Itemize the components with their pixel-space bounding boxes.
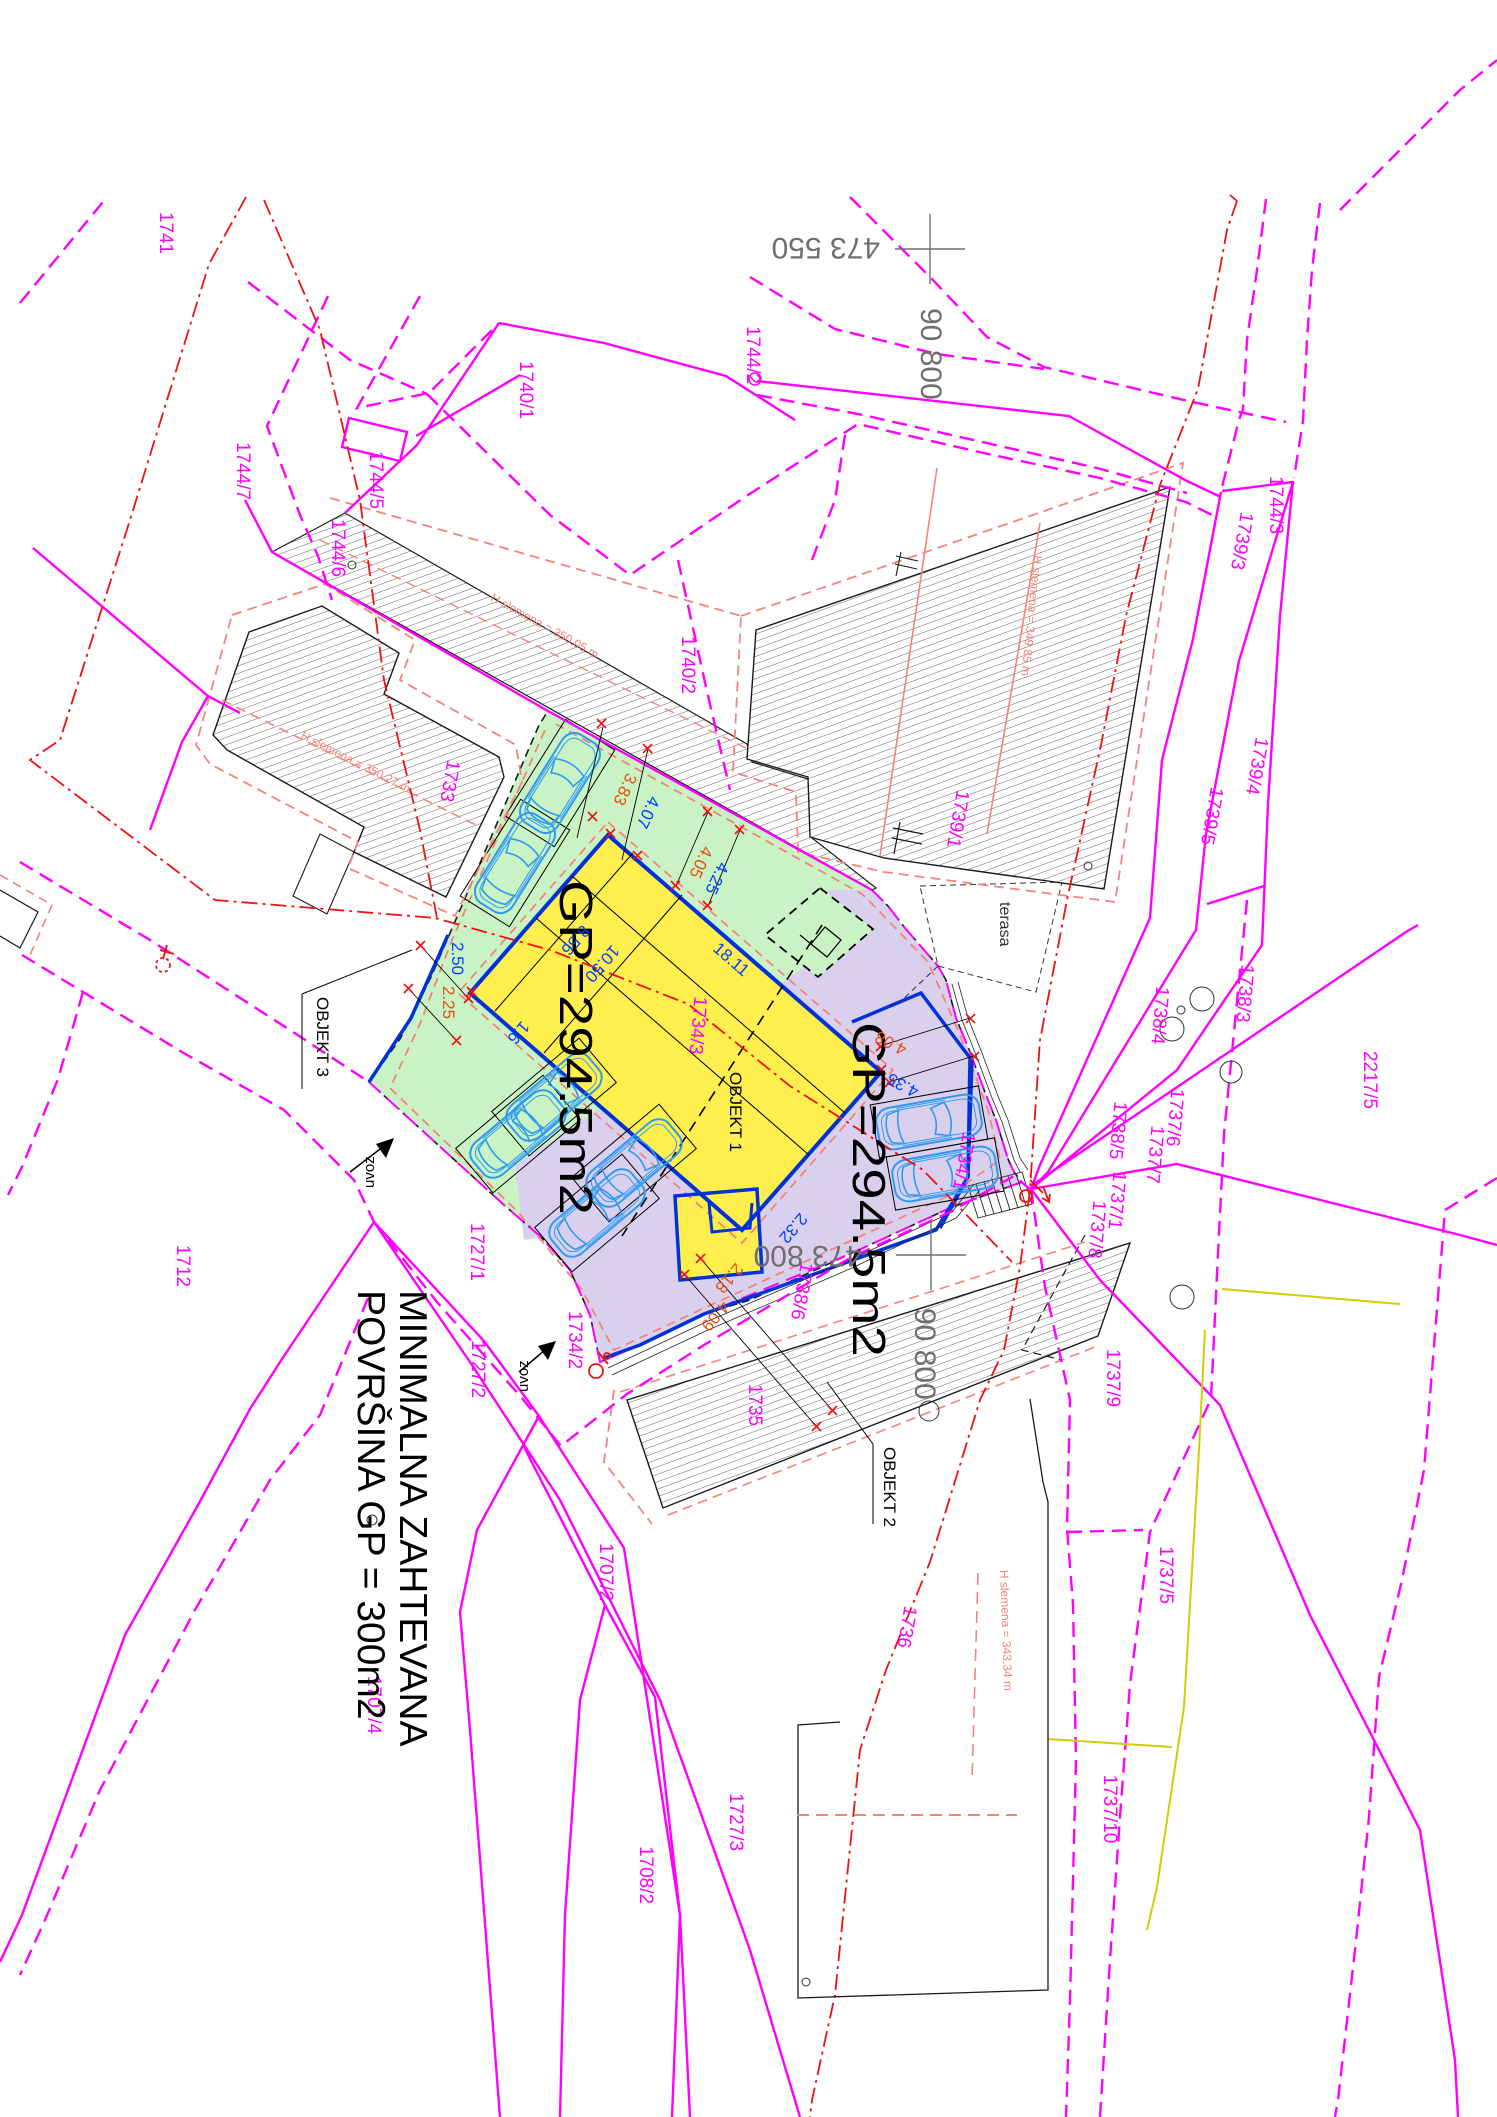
svg-text:1744/6: 1744/6 (327, 519, 348, 577)
svg-text:1737/10: 1737/10 (1099, 1775, 1120, 1844)
svg-text:GP=294.5m2: GP=294.5m2 (843, 1022, 895, 1357)
svg-text:OBJEKT 1: OBJEKT 1 (726, 1072, 745, 1152)
svg-text:OBJEKT 2: OBJEKT 2 (880, 1447, 899, 1527)
svg-text:473 550: 473 550 (772, 231, 880, 264)
svg-text:1707/2: 1707/2 (595, 1543, 616, 1601)
svg-text:90 800: 90 800 (914, 308, 947, 400)
svg-text:473 800: 473 800 (754, 1239, 862, 1272)
svg-text:2.25: 2.25 (439, 986, 458, 1019)
svg-text:1741: 1741 (155, 212, 176, 254)
svg-text:1712: 1712 (172, 1245, 193, 1287)
svg-text:uvoz: uvoz (361, 1156, 378, 1188)
svg-text:uvoz: uvoz (515, 1360, 532, 1392)
svg-text:POVRŠINA GP = 300m2: POVRŠINA GP = 300m2 (349, 1290, 393, 1720)
svg-text:1727/3: 1727/3 (725, 1793, 746, 1851)
svg-text:1744/3: 1744/3 (1265, 476, 1286, 534)
svg-text:MINIMALNA ZAHTEVANA: MINIMALNA ZAHTEVANA (391, 1290, 434, 1747)
svg-text:1735: 1735 (744, 1384, 765, 1426)
svg-text:1744/7: 1744/7 (232, 442, 253, 500)
svg-text:1737/9: 1737/9 (1102, 1349, 1123, 1407)
svg-text:2.50: 2.50 (448, 942, 467, 975)
svg-text:1734/2: 1734/2 (564, 1311, 585, 1369)
svg-text:1744/5: 1744/5 (365, 451, 386, 509)
svg-text:1744/2: 1744/2 (742, 326, 763, 384)
svg-text:OBJEKT 3: OBJEKT 3 (313, 997, 332, 1077)
svg-text:2217/5: 2217/5 (1359, 1051, 1380, 1109)
svg-text:1708/2: 1708/2 (635, 1846, 656, 1904)
svg-text:1740/2: 1740/2 (677, 636, 698, 694)
svg-text:90 800: 90 800 (908, 1308, 941, 1400)
svg-text:1737/5: 1737/5 (1155, 1546, 1176, 1604)
svg-text:terasa: terasa (996, 902, 1013, 947)
svg-text:1740/1: 1740/1 (515, 361, 536, 419)
svg-text:1727/1: 1727/1 (466, 1223, 487, 1281)
svg-text:1727/2: 1727/2 (467, 1340, 488, 1398)
